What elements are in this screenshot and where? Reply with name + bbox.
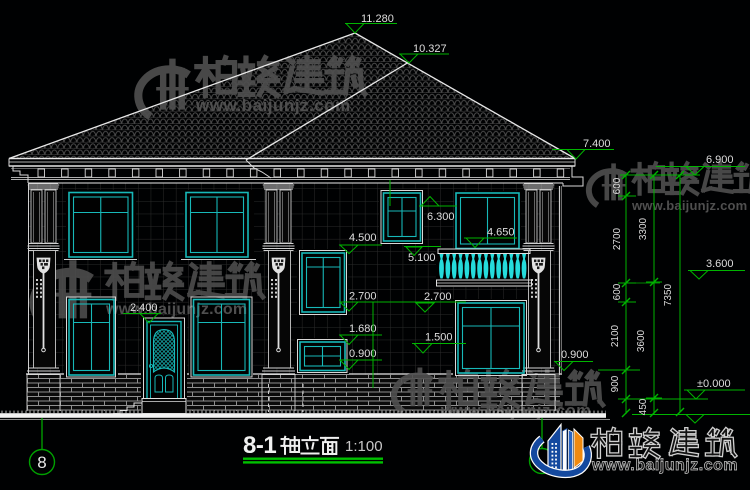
svg-text:1.500: 1.500	[425, 332, 453, 344]
svg-text:7.400: 7.400	[583, 138, 611, 150]
svg-text:2.700: 2.700	[424, 291, 452, 303]
svg-text:10.327: 10.327	[413, 43, 447, 55]
svg-text:2700: 2700	[612, 227, 623, 250]
svg-text:6.900: 6.900	[706, 154, 734, 166]
svg-text:8: 8	[37, 453, 46, 472]
svg-text:900: 900	[610, 375, 621, 392]
svg-text:www.baijunjz.com: www.baijunjz.com	[195, 96, 351, 115]
svg-text:3.600: 3.600	[706, 258, 734, 270]
svg-text:0.900: 0.900	[561, 349, 589, 361]
svg-text:4.500: 4.500	[349, 232, 377, 244]
svg-text:www.baijunjz.com: www.baijunjz.com	[631, 198, 747, 213]
svg-text:8-1: 8-1	[243, 432, 276, 459]
svg-text:600: 600	[612, 283, 623, 300]
svg-text:2.700: 2.700	[349, 291, 377, 303]
svg-text:6.300: 6.300	[427, 211, 455, 223]
svg-text:2100: 2100	[610, 324, 621, 347]
svg-text:www.baijunjz.com: www.baijunjz.com	[591, 457, 738, 474]
svg-text:450: 450	[638, 398, 649, 415]
svg-text:3300: 3300	[638, 217, 649, 240]
svg-text:4.650: 4.650	[487, 227, 515, 239]
svg-text:1:100: 1:100	[345, 438, 383, 455]
svg-text:2.400: 2.400	[130, 302, 158, 314]
svg-text:0.900: 0.900	[349, 348, 377, 360]
svg-text:±0.000: ±0.000	[697, 378, 731, 390]
svg-text:7350: 7350	[663, 283, 674, 306]
svg-text:1.680: 1.680	[349, 323, 377, 335]
svg-text:3600: 3600	[636, 329, 647, 352]
svg-text:600: 600	[612, 177, 623, 194]
